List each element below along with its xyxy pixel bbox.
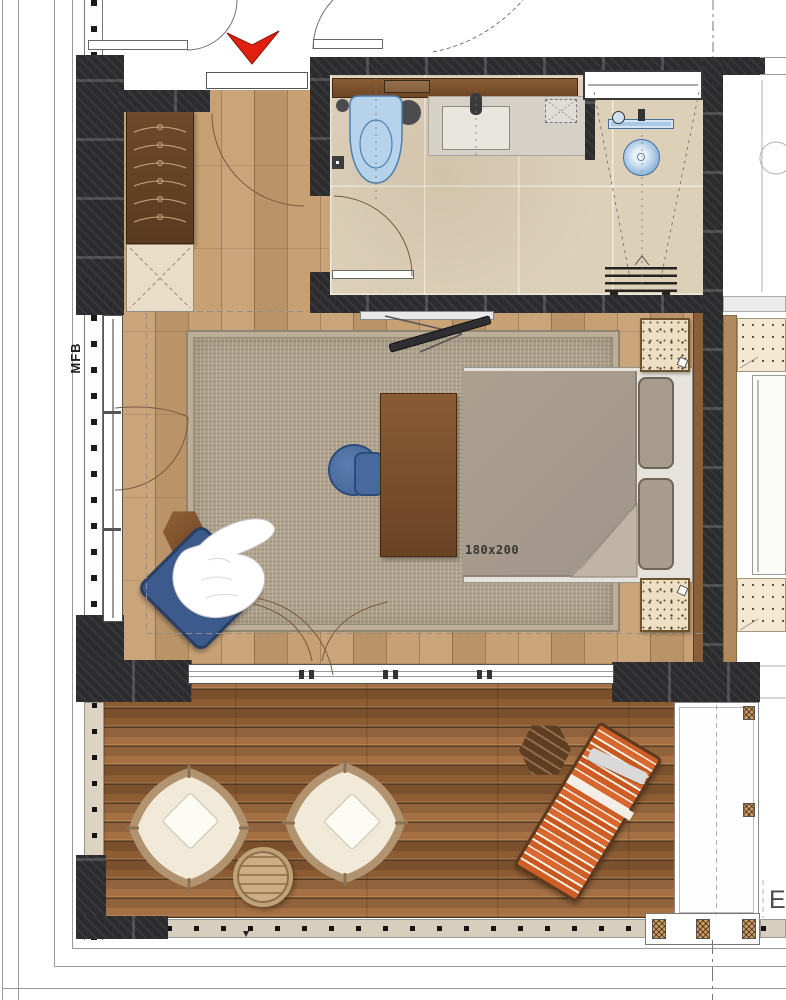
bed-dimensions-label: 180x200: [465, 543, 545, 557]
terrace-planter-divider: [674, 702, 759, 918]
pier-post: [742, 919, 756, 939]
bathroom-west-wall-upper: [310, 75, 330, 196]
bathroom-clerestory-window: [583, 70, 703, 100]
party-wall-right: [703, 57, 723, 702]
corridor-door-leaf: [313, 39, 383, 49]
wardrobe: [126, 110, 194, 244]
bathroom-wall-shelf: [332, 78, 578, 98]
wall-control-box: [332, 156, 344, 169]
terrace-bottom-railing: [166, 919, 647, 938]
bedside-lamp-icon: [677, 357, 689, 369]
adjacent-unit-headboard-trim: [723, 315, 737, 702]
exterior-wall-left-lower: [76, 615, 124, 664]
sink-faucet-icon: [470, 93, 482, 115]
tv-mount-plate: [360, 311, 494, 320]
bathroom-door-leaf: [332, 270, 414, 279]
round-coffee-table: [233, 847, 293, 907]
railing-pier-box: [645, 913, 760, 945]
rain-shower-head: [623, 139, 660, 176]
adjacent-unit-nightstand: [737, 318, 786, 372]
door-mullion: [487, 670, 492, 679]
bed-pillow: [638, 478, 674, 570]
bedroom-west-window: [103, 315, 123, 622]
entrance-arrow-icon: [227, 31, 279, 64]
window-glass-line: [588, 84, 698, 86]
window-glass-line: [112, 319, 114, 618]
corridor-door-leaf: [88, 40, 188, 50]
bathroom-round-accessory: [336, 99, 349, 112]
planter-post: [743, 803, 755, 817]
exterior-wall-left: [76, 55, 124, 315]
entrance-door-recess: [206, 72, 308, 89]
pier-post: [652, 919, 666, 939]
headboard-wall-panel: [693, 313, 703, 662]
door-mullion: [299, 670, 304, 679]
toilet-flush-plate: [384, 80, 430, 93]
door-mullion: [383, 670, 388, 679]
storage-niche: [545, 99, 577, 123]
pier-post: [696, 919, 710, 939]
desk: [380, 393, 457, 557]
shower-control-knob: [612, 111, 625, 124]
shower-head-center: [637, 153, 645, 161]
shower-bench: [605, 262, 677, 292]
door-mullion: [393, 670, 398, 679]
floor-plan-canvas: MFB 180x200 E: [0, 0, 786, 1000]
bed-pillow: [638, 377, 674, 469]
bed-outline-line: [757, 380, 759, 572]
bedside-lamp-icon: [677, 585, 689, 597]
control-dot: [336, 161, 339, 164]
edge-text-label: E: [769, 886, 786, 915]
terrace-bottom-railing-right: [760, 919, 786, 938]
window-frame-break: [104, 411, 121, 414]
luggage-bench: [126, 244, 194, 312]
door-mullion: [477, 670, 482, 679]
lounger-headrest-pillow: [587, 747, 649, 785]
adjacent-unit-bed-outline: [752, 375, 786, 575]
terrace-dark-rail-left: [76, 916, 168, 939]
terrace-corner-pier: [76, 855, 106, 917]
lounger-backrest-divider: [566, 775, 634, 821]
entry-wall: [118, 90, 210, 112]
terrace-sliding-door: [188, 664, 614, 684]
door-mullion: [309, 670, 314, 679]
adjacent-unit-tv-wall: [723, 296, 786, 312]
adjacent-unit-nightstand: [737, 578, 786, 632]
shower-valve: [638, 109, 645, 121]
nightstand: [640, 318, 690, 372]
south-wall-right: [612, 662, 760, 702]
nightstand: [640, 578, 690, 632]
wall-marker-label: MFB: [68, 328, 84, 388]
south-wall-left: [76, 660, 192, 702]
planter-post: [743, 706, 755, 720]
window-frame-break: [104, 528, 121, 531]
bathroom-stool: [396, 100, 421, 125]
